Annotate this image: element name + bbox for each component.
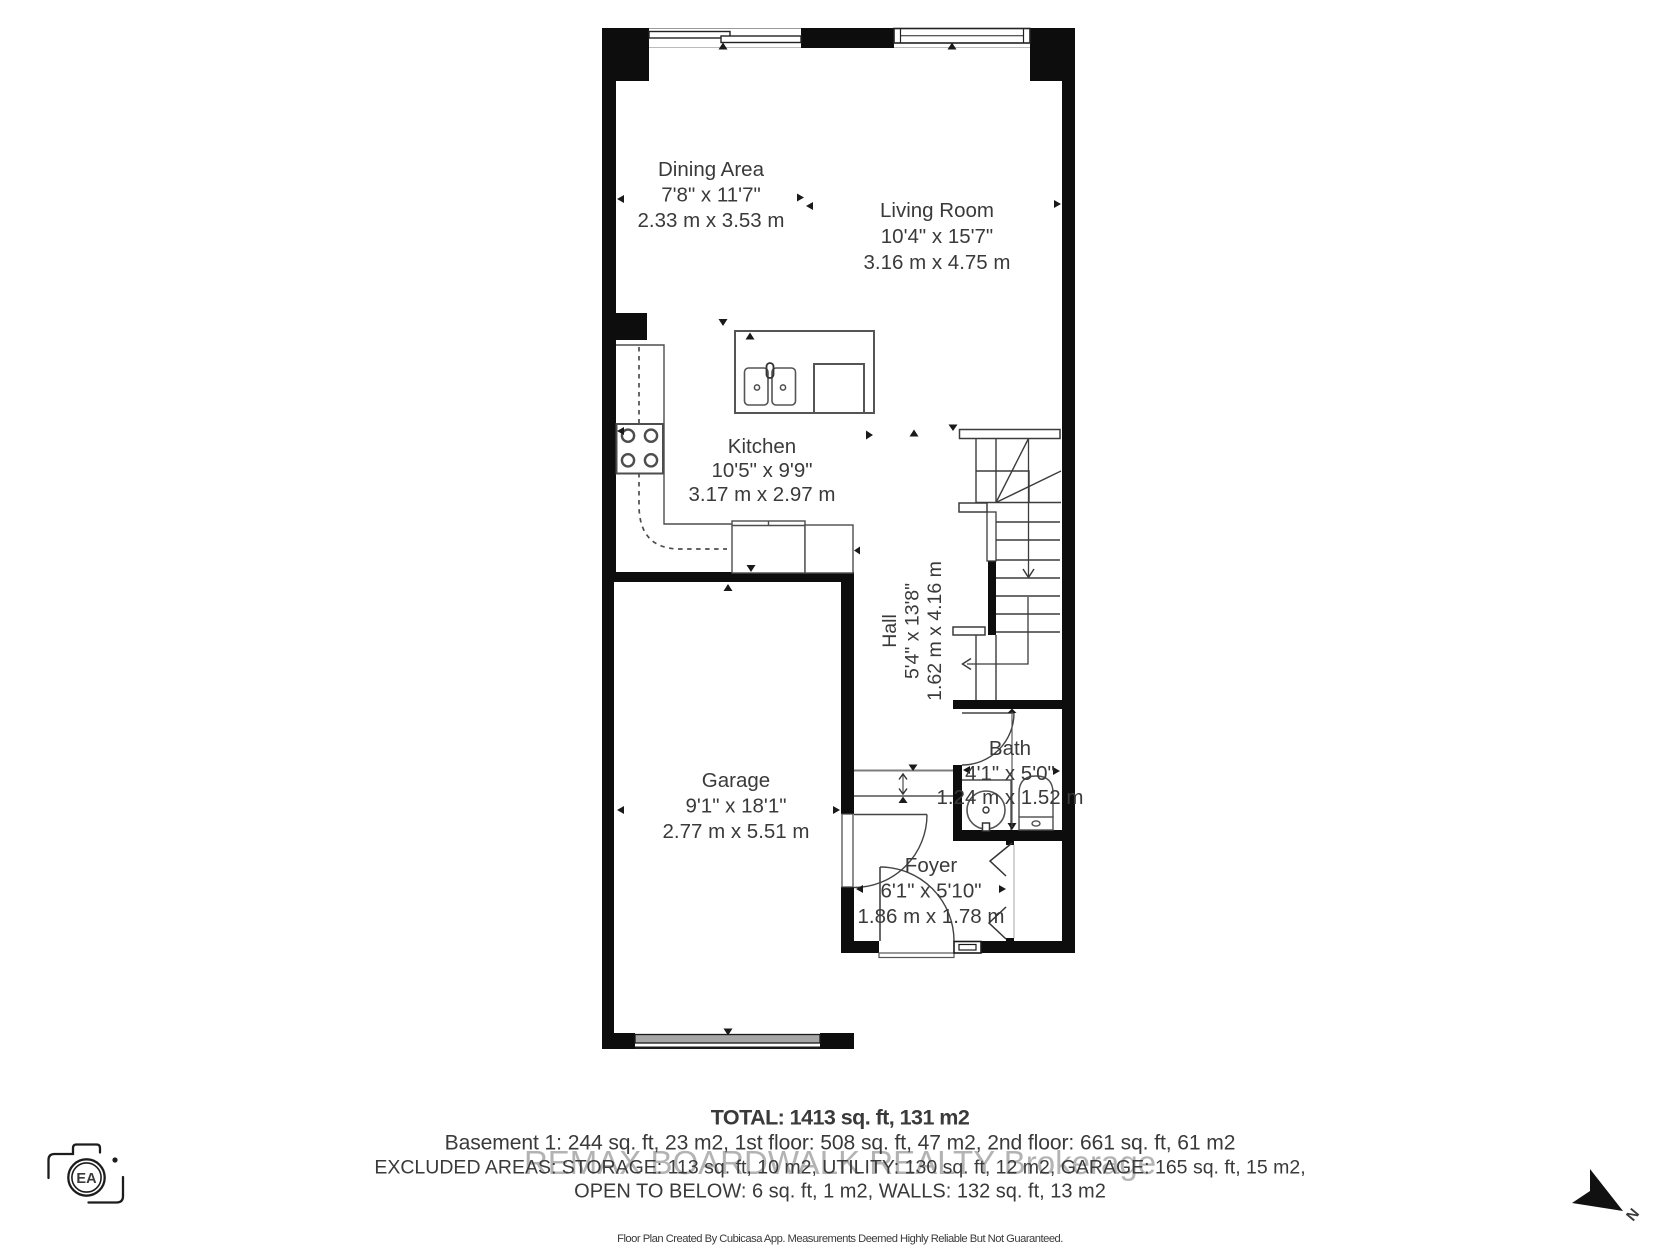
svg-text:2.33 m x 3.53 m: 2.33 m x 3.53 m bbox=[638, 209, 785, 232]
svg-text:9'1" x 18'1": 9'1" x 18'1" bbox=[685, 795, 786, 818]
svg-text:Basement 1: 244 sq. ft, 23 m2,: Basement 1: 244 sq. ft, 23 m2, 1st floor… bbox=[445, 1132, 1236, 1155]
svg-text:1.62 m x 4.16 m: 1.62 m x 4.16 m bbox=[924, 561, 946, 701]
svg-text:Garage: Garage bbox=[702, 769, 770, 792]
svg-text:5'4" x 13'8": 5'4" x 13'8" bbox=[902, 583, 924, 679]
svg-text:4'1" x 5'0": 4'1" x 5'0" bbox=[965, 762, 1055, 785]
svg-text:Living Room: Living Room bbox=[880, 199, 994, 222]
svg-text:3.17 m x 2.97 m: 3.17 m x 2.97 m bbox=[689, 483, 836, 506]
svg-text:6'1" x 5'10": 6'1" x 5'10" bbox=[880, 880, 981, 903]
svg-text:10'5" x 9'9": 10'5" x 9'9" bbox=[711, 459, 812, 482]
svg-text:3.16 m x 4.75 m: 3.16 m x 4.75 m bbox=[864, 251, 1011, 274]
svg-text:OPEN TO BELOW: 6 sq. ft, 1 m2,: OPEN TO BELOW: 6 sq. ft, 1 m2, WALLS: 13… bbox=[574, 1181, 1106, 1203]
svg-text:TOTAL: 1413 sq. ft, 131 m2: TOTAL: 1413 sq. ft, 131 m2 bbox=[711, 1106, 970, 1130]
svg-text:Foyer: Foyer bbox=[905, 854, 958, 877]
svg-text:Floor Plan Created By Cubicasa: Floor Plan Created By Cubicasa App. Meas… bbox=[617, 1233, 1063, 1245]
svg-text:Bath: Bath bbox=[989, 737, 1031, 760]
svg-text:1.24 m x 1.52 m: 1.24 m x 1.52 m bbox=[937, 786, 1084, 809]
svg-text:Kitchen: Kitchen bbox=[728, 435, 796, 458]
svg-text:2.77 m x 5.51 m: 2.77 m x 5.51 m bbox=[663, 820, 810, 843]
svg-text:Dining Area: Dining Area bbox=[658, 158, 765, 181]
svg-text:1.86 m x 1.78 m: 1.86 m x 1.78 m bbox=[858, 905, 1005, 928]
svg-text:EA: EA bbox=[76, 1171, 97, 1187]
svg-text:EXCLUDED AREAS: STORAGE: 113 s: EXCLUDED AREAS: STORAGE: 113 sq. ft, 10 … bbox=[374, 1157, 1305, 1179]
svg-text:Hall: Hall bbox=[879, 614, 901, 648]
svg-text:7'8" x 11'7": 7'8" x 11'7" bbox=[661, 184, 761, 207]
svg-text:10'4" x 15'7": 10'4" x 15'7" bbox=[881, 225, 993, 248]
